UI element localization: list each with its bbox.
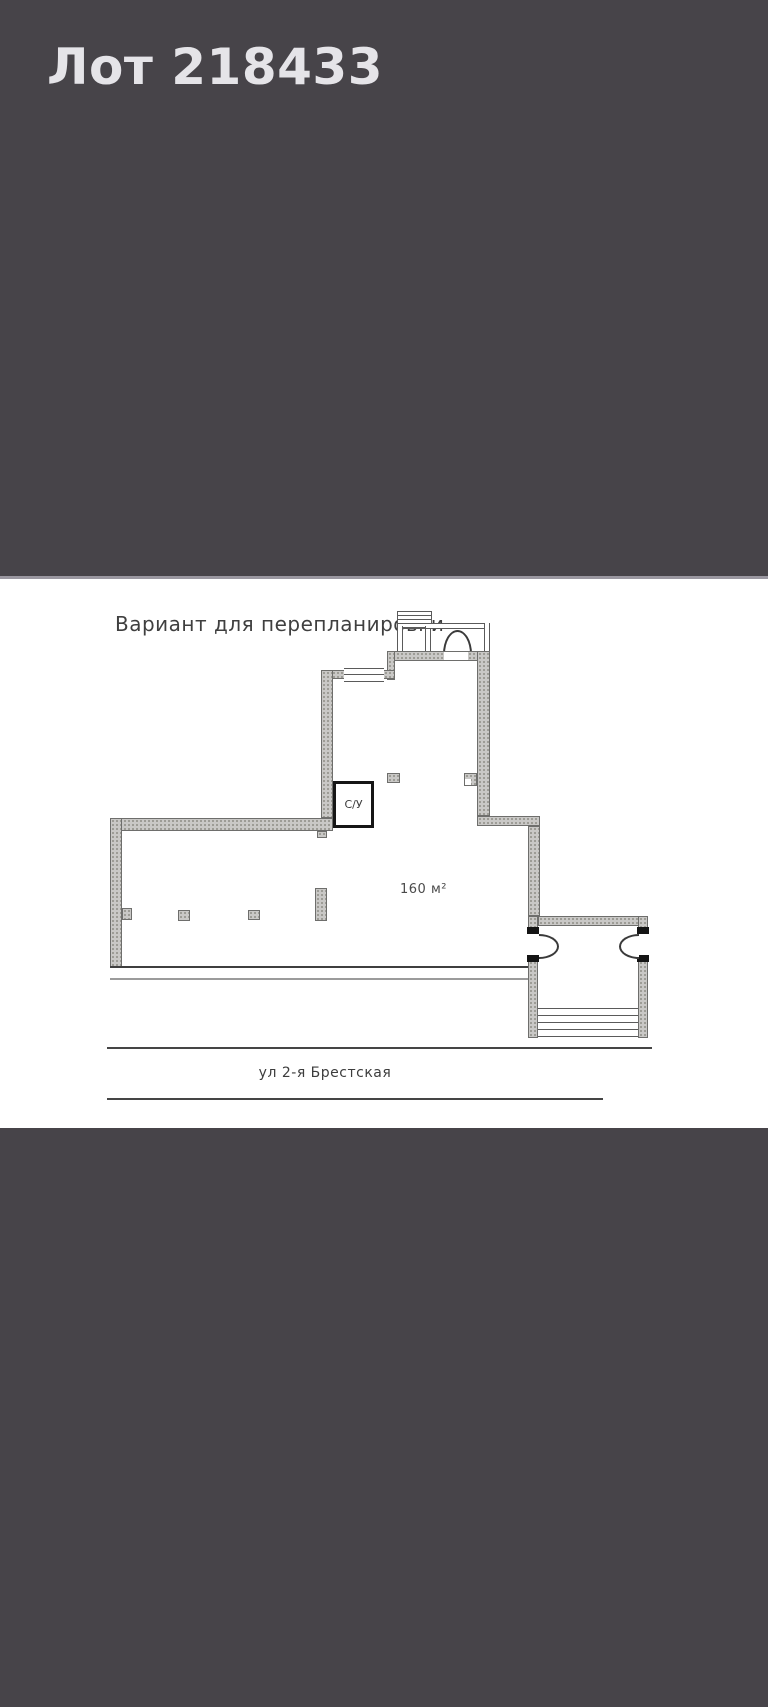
annex-left-door-arc: [539, 934, 559, 959]
bottom-spacer: [0, 1128, 768, 1707]
annex-right-door-jamb-top: [637, 927, 649, 934]
annex-right-door-arc: [619, 934, 639, 959]
entrance-door-opening: [444, 652, 468, 660]
street-label: ул 2-я Брестская: [180, 1065, 470, 1081]
column-upper: [387, 773, 400, 783]
annex-left-door-jamb-bottom: [527, 955, 539, 962]
annex-right-door-opening: [638, 934, 648, 955]
plan-caption: Вариант для перепланировки: [115, 612, 444, 636]
upper-room-left-wall: [321, 670, 333, 818]
street-line-top: [107, 1047, 652, 1049]
junction-wall-stub: [317, 831, 327, 838]
porch-rail-left: [397, 626, 403, 651]
floor-plan-canvas: Вариант для перепланировки С/У: [0, 579, 768, 1131]
annex-left-door-opening: [528, 934, 538, 955]
page-background: { "header": { "lot_title": "Лот 218433" …: [0, 0, 768, 1707]
top-wall: [387, 651, 488, 661]
left-wall: [110, 818, 122, 976]
vestibule-right-wall: [484, 623, 490, 653]
bathroom-label: С/У: [344, 798, 362, 811]
annex-stairs: [538, 1008, 638, 1038]
main-right-wall: [528, 826, 540, 916]
upper-room-right-wall: [477, 651, 490, 816]
vestibule-top-wall: [426, 623, 488, 629]
porch-rail-right: [425, 626, 431, 651]
annex-left-door-jamb-top: [527, 927, 539, 934]
bathroom-room: С/У: [333, 781, 374, 828]
right-jog-wall: [477, 816, 540, 826]
column-1: [178, 910, 190, 921]
floor-plan-image[interactable]: Вариант для перепланировки С/У: [0, 576, 768, 1128]
wing-top-wall: [110, 818, 333, 831]
street-line-bottom: [107, 1098, 603, 1100]
right-wall-stub: [464, 773, 477, 786]
lot-title: Лот 218433: [47, 38, 383, 96]
area-label: 160 м²: [400, 882, 447, 897]
annex-top-wall: [538, 916, 648, 926]
column-2: [248, 910, 260, 920]
column-left-stub: [122, 908, 132, 920]
window: [344, 668, 384, 682]
bottom-glazed-wall: [110, 966, 528, 980]
column-pier: [315, 888, 327, 921]
